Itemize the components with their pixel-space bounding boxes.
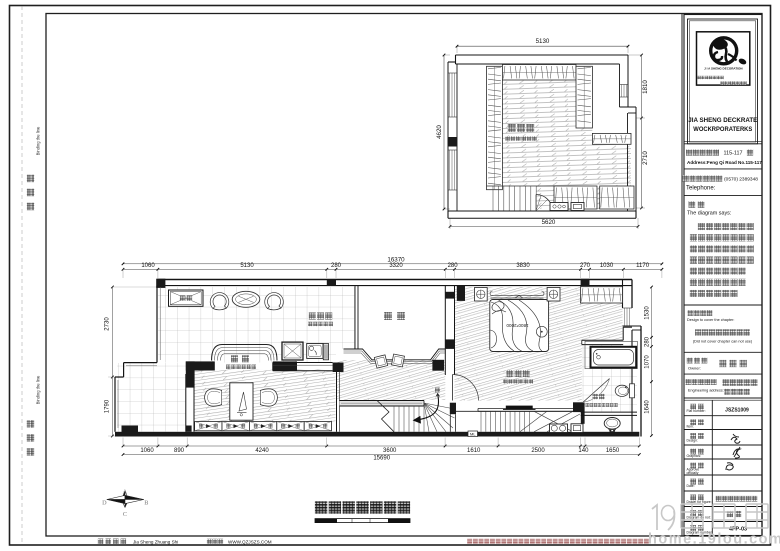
svg-text:(Did not cover chapter can not: (Did not cover chapter can not use)	[693, 340, 753, 344]
svg-text:5130: 5130	[240, 263, 254, 269]
svg-text:A: A	[123, 489, 128, 496]
svg-text:2710: 2710	[642, 151, 649, 165]
svg-text:Binding the line: Binding the line	[36, 126, 41, 155]
svg-text:Date:: Date:	[687, 484, 695, 488]
svg-text:Engineering address:: Engineering address:	[688, 389, 724, 393]
svg-text:officially: officially	[687, 471, 699, 475]
svg-text:2500: 2500	[531, 448, 545, 454]
svg-text:1790: 1790	[105, 399, 111, 413]
svg-text:1060: 1060	[141, 263, 155, 269]
svg-text:The diagram says:: The diagram says:	[687, 211, 731, 217]
svg-text:Owner:: Owner:	[688, 366, 701, 371]
svg-text:3600: 3600	[383, 448, 397, 454]
svg-text:Jia Sheng Zhuang Shi: Jia Sheng Zhuang Shi	[133, 539, 178, 544]
svg-text:1070: 1070	[644, 355, 650, 369]
svg-text:115-117: 115-117	[724, 151, 743, 157]
svg-text:B: B	[144, 500, 148, 507]
svg-text:C: C	[123, 511, 127, 518]
svg-text:Flat number:: Flat number:	[687, 409, 706, 413]
svg-text:280: 280	[644, 336, 650, 347]
svg-text:(0570) 2389348: (0570) 2389348	[724, 177, 758, 183]
svg-text:4240: 4240	[255, 448, 269, 454]
svg-text:Design to cover the chapter:: Design to cover the chapter:	[687, 318, 735, 322]
svg-text:270: 270	[580, 263, 591, 269]
svg-text:2730: 2730	[105, 317, 111, 331]
svg-text:1810: 1810	[642, 80, 649, 94]
svg-text:Binding the line: Binding the line	[36, 375, 41, 404]
svg-text:1610: 1610	[467, 448, 481, 454]
svg-text:5130: 5130	[536, 38, 550, 45]
svg-text:3320: 3320	[389, 263, 403, 269]
svg-text:5620: 5620	[542, 219, 556, 226]
svg-text:3830: 3830	[516, 263, 530, 269]
svg-text:Graphics:: Graphics:	[687, 454, 702, 458]
svg-text:890: 890	[174, 448, 185, 454]
svg-text:Telephone:: Telephone:	[686, 186, 716, 192]
svg-text:ML: ML	[470, 431, 476, 436]
svg-text:JIA SHENG DECKRATE: JIA SHENG DECKRATE	[688, 117, 758, 124]
svg-text:WWW.QZJSZS.COM: WWW.QZJSZS.COM	[228, 539, 272, 544]
svg-text:1650: 1650	[606, 448, 620, 454]
svg-text:Diagram do not:: Diagram do not:	[687, 516, 711, 520]
svg-text:Address:Feng Qi Road No.115-11: Address:Feng Qi Road No.115-117	[687, 160, 762, 165]
svg-text:1170: 1170	[636, 263, 650, 269]
svg-text:280: 280	[448, 263, 459, 269]
svg-text:JSZS1009: JSZS1009	[725, 408, 749, 414]
svg-text:J I A SHENG DECORATION: J I A SHENG DECORATION	[704, 66, 742, 70]
svg-text:280: 280	[331, 263, 342, 269]
svg-text:1640: 1640	[644, 400, 650, 414]
svg-text:Item:: Item:	[687, 425, 695, 429]
svg-text:Design:: Design:	[687, 439, 699, 443]
svg-text:1800*2000: 1800*2000	[506, 323, 529, 328]
svg-text:1060: 1060	[140, 448, 154, 454]
svg-text:D: D	[102, 500, 107, 507]
svg-text:WOCKRPORATERKS: WOCKRPORATERKS	[693, 126, 753, 133]
svg-text:1030: 1030	[600, 263, 614, 269]
svg-text:1530: 1530	[644, 306, 650, 320]
svg-text:4620: 4620	[436, 125, 443, 139]
svg-text:15690: 15690	[373, 456, 390, 462]
svg-text:home.19lou.com: home.19lou.com	[648, 532, 780, 548]
svg-text:140: 140	[578, 448, 589, 454]
